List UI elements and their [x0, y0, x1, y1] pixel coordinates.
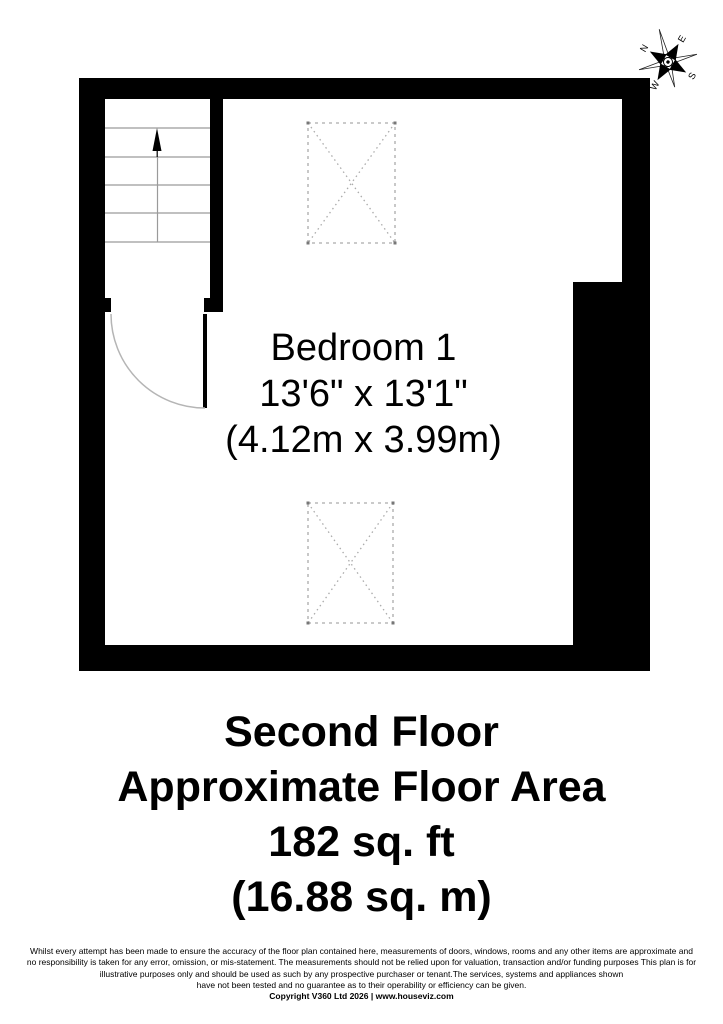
disclaimer-line: illustrative purposes only and should be… — [14, 969, 709, 980]
footer-disclaimer: Whilst every attempt has been made to en… — [14, 946, 709, 1002]
stairs-up-arrowhead — [153, 128, 162, 151]
skylight-symbol-bottom — [307, 502, 395, 625]
room-size-metric: (4.12m x 3.99m) — [105, 417, 622, 463]
skylight-outline — [308, 503, 393, 623]
room-size-imperial: 13'6" x 13'1" — [105, 371, 622, 417]
copyright-line: Copyright V360 Ltd 2026 | www.houseviz.c… — [14, 991, 709, 1002]
wall-bottom — [79, 645, 650, 671]
disclaimer-line: have not been tested and no guarantee as… — [14, 980, 709, 991]
compass-south-label: S — [686, 71, 699, 82]
area-imperial: 182 sq. ft — [0, 815, 723, 870]
skylight-diagonal — [308, 503, 393, 623]
door-jamb-left — [105, 298, 111, 312]
stairs-up-arrow-icon — [153, 128, 162, 157]
wall-stairwell — [210, 99, 223, 312]
compass-east-label: E — [676, 34, 689, 45]
area-metric: (16.88 sq. m) — [0, 870, 723, 925]
skylight-diagonal — [308, 503, 393, 623]
door-jamb-right — [204, 298, 223, 312]
compass-west-label: W — [648, 79, 662, 92]
floor-plan-page: N E S W Bedroom 1 13'6" x 13'1" (4.12m x… — [0, 0, 723, 1024]
area-label: Approximate Floor Area — [0, 760, 723, 815]
compass-north-label: N — [638, 43, 651, 55]
room-name: Bedroom 1 — [105, 325, 622, 371]
stairs-up-arrow-stem — [157, 150, 158, 157]
wall-top — [79, 78, 650, 99]
disclaimer-line: no responsibility is taken for any error… — [14, 957, 709, 968]
floor-name: Second Floor — [0, 705, 723, 760]
wall-left — [79, 78, 105, 671]
disclaimer-line: Whilst every attempt has been made to en… — [14, 946, 709, 957]
skylight-symbol-top — [307, 122, 397, 245]
title-block: Second Floor Approximate Floor Area 182 … — [0, 705, 723, 925]
room-label: Bedroom 1 13'6" x 13'1" (4.12m x 3.99m) — [105, 325, 622, 463]
wall-right-upper — [622, 78, 650, 282]
